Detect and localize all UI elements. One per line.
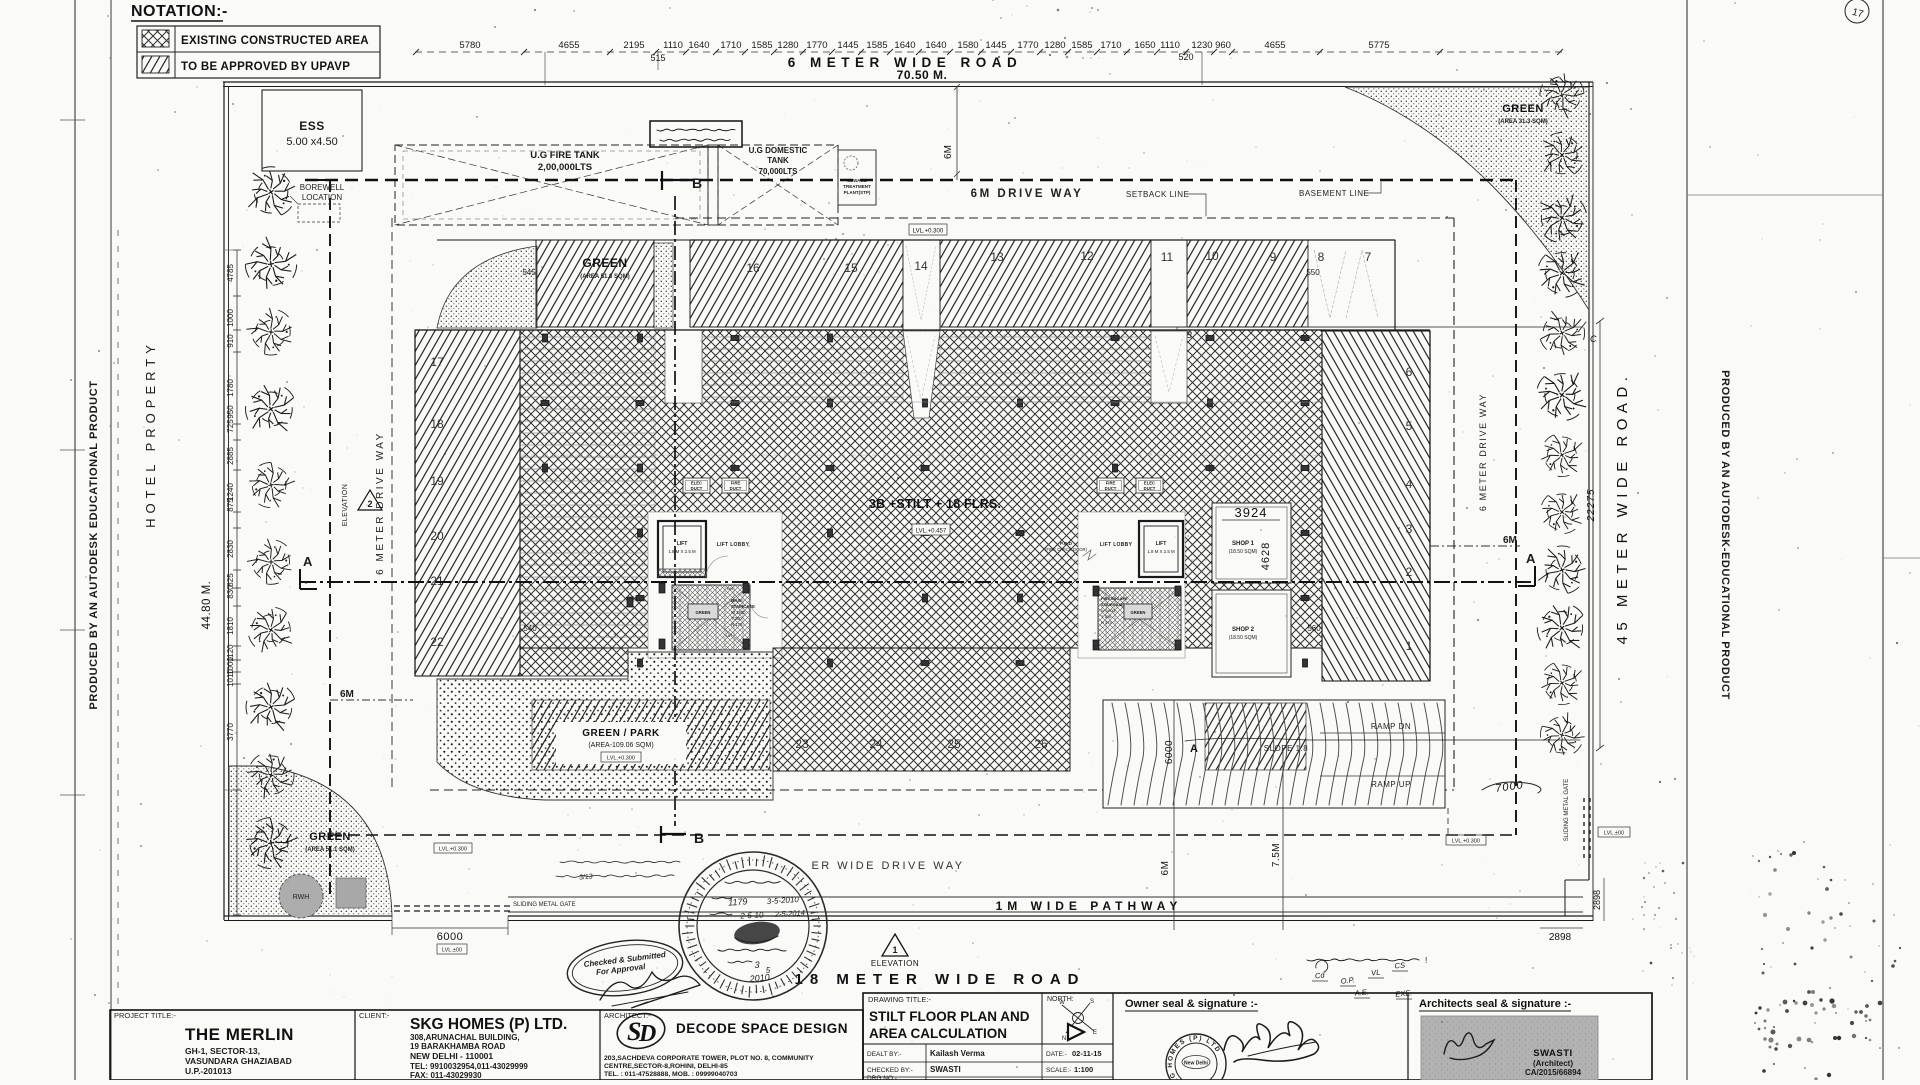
svg-text:DN: DN xyxy=(727,586,733,591)
svg-text:3: 3 xyxy=(1406,522,1413,536)
svg-text:GH-1, SECTOR-13,: GH-1, SECTOR-13, xyxy=(185,1046,260,1056)
svg-text:U.G DOMESTIC: U.G DOMESTIC xyxy=(749,146,808,155)
svg-text:LIFT: LIFT xyxy=(677,541,688,547)
svg-text:CS: CS xyxy=(1394,960,1405,970)
svg-text:550: 550 xyxy=(1306,268,1320,277)
svg-text:LIFT LOBBY: LIFT LOBBY xyxy=(717,542,750,548)
svg-text:STILT FLOOR PLAN AND: STILT FLOOR PLAN AND xyxy=(869,1009,1030,1024)
svg-text:N: N xyxy=(1062,1036,1066,1042)
svg-text:18: 18 xyxy=(430,417,444,431)
svg-text:SKG HOMES (P) LTD.: SKG HOMES (P) LTD. xyxy=(410,1016,567,1033)
svg-text:8: 8 xyxy=(1318,250,1325,264)
svg-text:B: B xyxy=(694,830,704,846)
svg-text:PLANT(STP): PLANT(STP) xyxy=(844,190,871,195)
svg-text:GREEN: GREEN xyxy=(582,256,627,270)
svg-text:GREEN: GREEN xyxy=(696,610,711,615)
svg-text:13: 13 xyxy=(990,250,1004,264)
svg-text:DRG NO:-: DRG NO:- xyxy=(867,1075,897,1080)
svg-text:1: 1 xyxy=(892,945,897,955)
svg-text:C: C xyxy=(1590,334,1597,344)
svg-text:DUCT: DUCT xyxy=(730,486,742,491)
svg-text:NEW DELHI - 110001: NEW DELHI - 110001 xyxy=(410,1051,493,1061)
svg-text:1640: 1640 xyxy=(688,40,709,51)
svg-text:6M DRIVE WAY: 6M DRIVE WAY xyxy=(971,188,1084,200)
svg-text:1M WIDE PATHWAY: 1M WIDE PATHWAY xyxy=(996,899,1183,913)
svg-text:1810: 1810 xyxy=(226,617,235,635)
svg-text:AREA CALCULATION: AREA CALCULATION xyxy=(869,1026,1007,1041)
svg-text:11: 11 xyxy=(1161,250,1174,264)
svg-text:2885: 2885 xyxy=(226,447,235,465)
svg-text:24: 24 xyxy=(869,737,883,751)
svg-text:DATE:-: DATE:- xyxy=(1046,1051,1067,1058)
svg-text:A: A xyxy=(1526,551,1536,566)
svg-text:70.50 M.: 70.50 M. xyxy=(897,68,948,82)
svg-text:6: 6 xyxy=(1406,365,1413,379)
svg-text:ELEVATION: ELEVATION xyxy=(871,959,919,968)
svg-text:6M: 6M xyxy=(340,689,354,700)
svg-text:GREEN / PARK: GREEN / PARK xyxy=(582,728,660,739)
svg-text:16: 16 xyxy=(746,261,760,275)
svg-text:P.O.D: P.O.D xyxy=(1060,541,1073,546)
svg-text:2-5-2014: 2-5-2014 xyxy=(774,908,805,919)
svg-text:14: 14 xyxy=(914,259,928,273)
svg-text:19: 19 xyxy=(430,474,444,488)
svg-text:LVL.+0.300: LVL.+0.300 xyxy=(439,847,467,853)
svg-text:DUCT: DUCT xyxy=(1144,486,1156,491)
svg-text:LVL.+0.300: LVL.+0.300 xyxy=(607,756,635,762)
svg-text:3924: 3924 xyxy=(1235,505,1268,520)
svg-text:LOCATION: LOCATION xyxy=(302,193,343,202)
svg-text:(FIRE CHECK DOOR): (FIRE CHECK DOOR) xyxy=(1045,547,1087,552)
svg-text:DRAWING TITLE:-: DRAWING TITLE:- xyxy=(868,995,931,1004)
svg-text:4785: 4785 xyxy=(226,264,235,282)
svg-text:SETBACK LINE: SETBACK LINE xyxy=(1126,190,1189,199)
svg-text:FIRE ESCAPE: FIRE ESCAPE xyxy=(1101,596,1128,601)
svg-text:2: 2 xyxy=(1406,565,1413,579)
svg-text:1710: 1710 xyxy=(720,40,741,51)
svg-text:TEL: 9910032954,011-43029999: TEL: 9910032954,011-43029999 xyxy=(410,1062,528,1071)
svg-text:BASEMENT LINE: BASEMENT LINE xyxy=(1299,189,1369,198)
svg-text:HOTEL PROPERTY: HOTEL PROPERTY xyxy=(143,340,158,528)
svg-text:(Architect): (Architect) xyxy=(1533,1059,1573,1068)
svg-text:1650: 1650 xyxy=(1134,40,1155,51)
svg-text:FIRE: FIRE xyxy=(731,481,741,486)
svg-text:825: 825 xyxy=(226,573,235,587)
svg-text:RWH: RWH xyxy=(293,894,310,901)
svg-text:PROJECT TITLE:-: PROJECT TITLE:- xyxy=(114,1011,176,1020)
svg-text:EXISTING CONSTRUCTED AREA: EXISTING CONSTRUCTED AREA xyxy=(181,35,369,47)
svg-text:W: W xyxy=(1059,1000,1065,1006)
svg-text:U.G FIRE TANK: U.G FIRE TANK xyxy=(530,150,600,161)
svg-text:ELEC: ELEC xyxy=(1144,481,1155,486)
svg-text:1640: 1640 xyxy=(925,40,946,51)
svg-text:TEL. : 011-47528888, MOB. : 09: TEL. : 011-47528888, MOB. : 09999040703 xyxy=(604,1071,738,1078)
svg-text:4628: 4628 xyxy=(1260,542,1272,570)
svg-text:950: 950 xyxy=(226,405,235,419)
svg-text:203,SACHDEVA CORPORATE TOWER,: 203,SACHDEVA CORPORATE TOWER, PLOT NO. 8… xyxy=(604,1055,814,1062)
svg-text:17: 17 xyxy=(430,355,444,369)
svg-text:875: 875 xyxy=(226,498,235,512)
svg-text:(AREA 31.3 SQM): (AREA 31.3 SQM) xyxy=(1498,119,1547,125)
svg-text:SLIDING METAL GATE: SLIDING METAL GATE xyxy=(513,902,576,908)
svg-text:CHECKED BY:-: CHECKED BY:- xyxy=(867,1067,913,1074)
svg-text:4: 4 xyxy=(1406,477,1413,491)
svg-text:1770: 1770 xyxy=(806,40,827,51)
svg-text:1240: 1240 xyxy=(226,483,235,501)
svg-text:960: 960 xyxy=(1215,40,1231,51)
svg-text:1585: 1585 xyxy=(1071,40,1092,51)
svg-text:70,000LTS: 70,000LTS xyxy=(759,167,799,176)
svg-text:LVL.±00: LVL.±00 xyxy=(442,948,462,954)
svg-text:560: 560 xyxy=(1307,624,1321,633)
svg-text:DUCT: DUCT xyxy=(691,486,703,491)
svg-text:STAIRCASE: STAIRCASE xyxy=(1101,602,1124,607)
svg-text:12: 12 xyxy=(1080,249,1094,263)
svg-text:CA/2015/66894: CA/2015/66894 xyxy=(1525,1068,1582,1077)
svg-text:(18.50 SQM): (18.50 SQM) xyxy=(1229,549,1258,555)
svg-text:B: B xyxy=(692,175,702,191)
svg-text:BOREWELL: BOREWELL xyxy=(300,183,345,192)
svg-text:1.8 M X 2.5 M: 1.8 M X 2.5 M xyxy=(1147,549,1175,554)
svg-text:1585: 1585 xyxy=(866,40,887,51)
svg-text:2898: 2898 xyxy=(1549,932,1572,943)
svg-text:3770: 3770 xyxy=(226,723,235,741)
svg-text:LVL.±00: LVL.±00 xyxy=(1604,831,1624,837)
svg-text:1110: 1110 xyxy=(663,40,683,51)
svg-text:W 1500: W 1500 xyxy=(731,610,746,615)
svg-text:22275: 22275 xyxy=(1586,489,1597,523)
svg-text:540: 540 xyxy=(523,624,537,633)
svg-text:RAMP DN: RAMP DN xyxy=(1371,722,1411,731)
svg-text:1.8 M X 2.5 M: 1.8 M X 2.5 M xyxy=(668,549,696,554)
svg-text:45 METER WIDE ROAD.: 45 METER WIDE ROAD. xyxy=(1614,372,1631,645)
svg-text:6 METER DRIVE WAY: 6 METER DRIVE WAY xyxy=(375,431,386,575)
svg-text:1230: 1230 xyxy=(1191,40,1212,51)
svg-text:Architects seal & signature :-: Architects seal & signature :- xyxy=(1419,998,1572,1010)
svg-text:UP: UP xyxy=(726,633,732,638)
svg-text:U.P.-201013: U.P.-201013 xyxy=(185,1066,232,1076)
svg-text:Kailash Verma: Kailash Verma xyxy=(930,1049,985,1058)
svg-text:R 175: R 175 xyxy=(731,622,743,627)
svg-text:CLIENT:-: CLIENT:- xyxy=(359,1011,390,1020)
svg-text:10: 10 xyxy=(1205,249,1219,263)
svg-text:O.P.: O.P. xyxy=(1340,975,1355,985)
svg-text:SCALE:-: SCALE:- xyxy=(1046,1067,1071,1074)
svg-text:6M: 6M xyxy=(1503,535,1517,546)
svg-text:ELEVATION: ELEVATION xyxy=(342,484,349,527)
svg-text:6000: 6000 xyxy=(437,931,463,943)
svg-text:02-11-15: 02-11-15 xyxy=(1072,1049,1102,1058)
svg-text:19 BARAKHAMBA ROAD: 19 BARAKHAMBA ROAD xyxy=(410,1042,505,1051)
svg-text:ESS: ESS xyxy=(299,119,325,133)
svg-text:Owner seal & signature :-: Owner seal & signature :- xyxy=(1125,998,1258,1010)
svg-text:25: 25 xyxy=(947,737,961,751)
svg-text:SWASTI: SWASTI xyxy=(930,1065,961,1074)
svg-text:6 METER DRIVE WAY: 6 METER DRIVE WAY xyxy=(1478,393,1488,511)
svg-text:5.00 x4.50: 5.00 x4.50 xyxy=(286,136,337,148)
svg-text:18 METER WIDE ROAD: 18 METER WIDE ROAD xyxy=(794,971,1085,988)
svg-text:2: 2 xyxy=(367,499,372,509)
svg-text:4655: 4655 xyxy=(1264,40,1285,51)
svg-text:S: S xyxy=(1090,999,1094,1005)
svg-text:DECODE SPACE DESIGN: DECODE SPACE DESIGN xyxy=(676,1021,848,1036)
svg-text:2,00,000LTS: 2,00,000LTS xyxy=(538,162,592,173)
svg-text:23: 23 xyxy=(795,737,809,751)
svg-text:PRODUCED BY AN AUTODESK-EDUCAT: PRODUCED BY AN AUTODESK-EDUCATIONAL PROD… xyxy=(1719,370,1731,700)
svg-text:7: 7 xyxy=(1365,250,1372,264)
svg-text:910: 910 xyxy=(226,334,235,348)
svg-text:TO BE APPROVED BY UPAVP: TO BE APPROVED BY UPAVP xyxy=(181,61,350,73)
svg-text:DUCT: DUCT xyxy=(1105,486,1117,491)
svg-text:1770: 1770 xyxy=(1017,40,1038,51)
svg-text:5775: 5775 xyxy=(1368,40,1389,51)
svg-text:520: 520 xyxy=(1178,52,1193,62)
svg-text:1: 1 xyxy=(1406,639,1413,653)
svg-text:308,ARUNACHAL BUILDING,: 308,ARUNACHAL BUILDING, xyxy=(410,1033,520,1042)
svg-text:R 175: R 175 xyxy=(1101,620,1112,625)
svg-text:SHOP 1: SHOP 1 xyxy=(1232,541,1255,547)
svg-text:9: 9 xyxy=(1270,250,1277,264)
svg-text:6000: 6000 xyxy=(1164,740,1175,764)
svg-text:1780: 1780 xyxy=(226,379,235,397)
svg-text:LVL.+0.300: LVL.+0.300 xyxy=(1452,839,1480,845)
svg-text:New Delhi: New Delhi xyxy=(1184,1061,1209,1067)
svg-text:1640: 1640 xyxy=(894,40,915,51)
svg-text:1710: 1710 xyxy=(1100,40,1121,51)
svg-text:26: 26 xyxy=(1034,737,1048,751)
svg-text:STAIRCASE: STAIRCASE xyxy=(731,604,755,609)
svg-text:2898: 2898 xyxy=(1592,890,1602,910)
svg-text:(AREA-109.06 SQM): (AREA-109.06 SQM) xyxy=(588,742,653,749)
svg-text:2195: 2195 xyxy=(623,40,644,51)
svg-text:TANK: TANK xyxy=(767,156,789,165)
svg-text:5780: 5780 xyxy=(459,40,480,51)
svg-text:6M: 6M xyxy=(943,145,954,159)
svg-text:(18.50 SQM): (18.50 SQM) xyxy=(1229,635,1258,641)
svg-text:RAMP UP: RAMP UP xyxy=(1371,780,1411,789)
svg-text:1280: 1280 xyxy=(777,40,798,51)
svg-text:5: 5 xyxy=(1406,419,1413,433)
svg-text:2830: 2830 xyxy=(226,540,235,558)
svg-text:SWASTI: SWASTI xyxy=(1533,1048,1572,1059)
svg-text:GREEN: GREEN xyxy=(1131,610,1146,615)
svg-text:LIFT: LIFT xyxy=(1156,541,1167,547)
svg-text:1580: 1580 xyxy=(957,40,978,51)
svg-text:1000: 1000 xyxy=(226,309,235,327)
svg-text:NOTATION:-: NOTATION:- xyxy=(131,3,228,20)
svg-text:1280: 1280 xyxy=(1044,40,1065,51)
svg-text:44.80 M.: 44.80 M. xyxy=(201,581,213,630)
svg-text:22: 22 xyxy=(430,635,444,649)
svg-text:3: 3 xyxy=(754,960,759,970)
svg-text:4655: 4655 xyxy=(558,40,579,51)
svg-text:A: A xyxy=(303,554,313,569)
svg-text:VASUNDARA GHAZIABAD: VASUNDARA GHAZIABAD xyxy=(185,1056,292,1066)
svg-text:A: A xyxy=(1190,743,1198,755)
svg-text:LVL.+0.457: LVL.+0.457 xyxy=(916,529,947,535)
svg-text:830: 830 xyxy=(226,585,235,599)
svg-text:LIFT LOBBY: LIFT LOBBY xyxy=(1100,542,1133,548)
svg-text:SLOPE 1:8: SLOPE 1:8 xyxy=(1264,744,1309,753)
svg-text:T 300: T 300 xyxy=(731,616,742,621)
svg-text:1:100: 1:100 xyxy=(1074,1065,1093,1074)
svg-text:1445: 1445 xyxy=(837,40,858,51)
svg-text:FAX: 011-43029930: FAX: 011-43029930 xyxy=(410,1071,482,1080)
svg-text:CENTRE,SECTOR-8,ROHINI, DELHI-: CENTRE,SECTOR-8,ROHINI, DELHI-85 xyxy=(604,1063,728,1070)
svg-text:ER WIDE DRIVE WAY: ER WIDE DRIVE WAY xyxy=(811,860,964,872)
svg-text:3/13: 3/13 xyxy=(579,873,593,881)
svg-text:PRODUCED BY AN AUTODESK EDUCAT: PRODUCED BY AN AUTODESK EDUCATIONAL PROD… xyxy=(88,380,100,709)
svg-text:3B +STILT + 18 FLRS.: 3B +STILT + 18 FLRS. xyxy=(869,497,1001,511)
svg-text:SHOP 2: SHOP 2 xyxy=(1232,627,1255,633)
svg-text:6M: 6M xyxy=(1160,861,1171,876)
svg-text:VL: VL xyxy=(1371,968,1381,978)
svg-text:ELEC: ELEC xyxy=(691,481,702,486)
svg-text:DEALT BY:-: DEALT BY:- xyxy=(867,1051,901,1058)
svg-text:W 1000: W 1000 xyxy=(1101,608,1116,613)
svg-text:7.5M: 7.5M xyxy=(1271,843,1282,867)
svg-text:725: 725 xyxy=(226,419,235,433)
svg-text:15: 15 xyxy=(844,261,858,275)
svg-text:E: E xyxy=(1093,1030,1097,1036)
svg-text:!: ! xyxy=(1425,956,1427,965)
svg-text:GREEN: GREEN xyxy=(1502,103,1544,115)
svg-text:D: D xyxy=(638,1021,656,1047)
svg-text:T 300: T 300 xyxy=(1101,614,1112,619)
svg-text:LVL.+0.300: LVL.+0.300 xyxy=(913,229,944,235)
svg-text:21: 21 xyxy=(430,574,444,588)
svg-text:20: 20 xyxy=(430,529,444,543)
svg-text:1110: 1110 xyxy=(1160,40,1180,51)
svg-text:SLIDING METAL GATE: SLIDING METAL GATE xyxy=(1564,779,1570,842)
svg-text:THE MERLIN: THE MERLIN xyxy=(185,1025,294,1044)
svg-text:TREATMENT: TREATMENT xyxy=(843,184,871,189)
svg-text:1445: 1445 xyxy=(985,40,1006,51)
svg-text:1585: 1585 xyxy=(751,40,772,51)
svg-text:MAIN: MAIN xyxy=(731,598,742,603)
svg-text:2-5-10: 2-5-10 xyxy=(739,910,764,920)
svg-text:FIRE: FIRE xyxy=(1106,481,1116,486)
